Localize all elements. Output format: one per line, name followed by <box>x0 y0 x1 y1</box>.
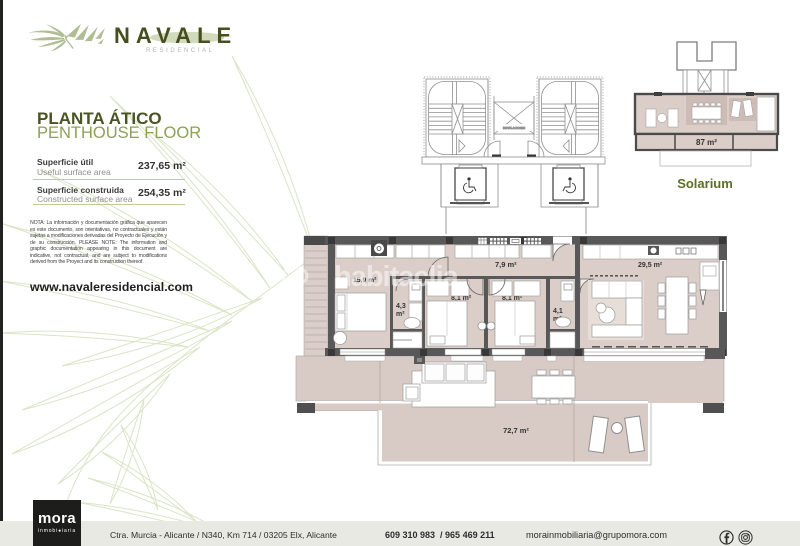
svg-text:habitaclia: habitaclia <box>334 261 460 293</box>
svg-text:Solarium: Solarium <box>677 176 733 191</box>
svg-text:4,1: 4,1 <box>553 308 563 315</box>
svg-text:72,7 m²: 72,7 m² <box>503 426 529 435</box>
svg-text:87 m²: 87 m² <box>696 138 717 147</box>
svg-text:4,3: 4,3 <box>396 303 406 310</box>
svg-text:7,9 m²: 7,9 m² <box>495 260 517 269</box>
svg-text:29,5 m²: 29,5 m² <box>638 262 663 269</box>
svg-text:INSTALACIONES: INSTALACIONES <box>503 126 525 130</box>
svg-text:m²: m² <box>396 311 405 318</box>
